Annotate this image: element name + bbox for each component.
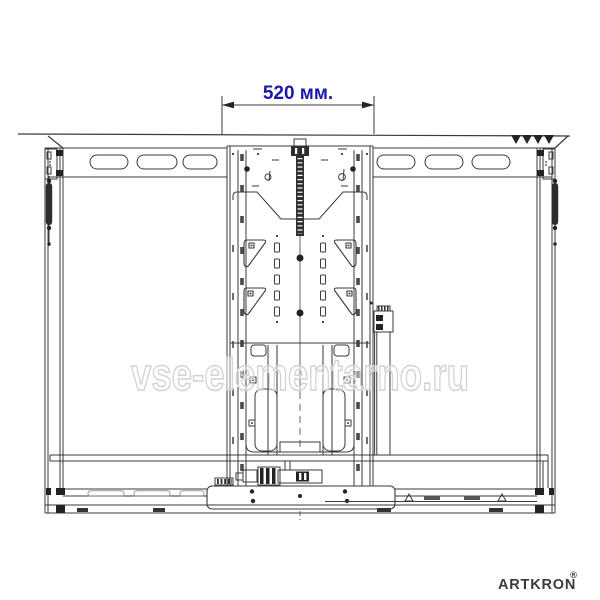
- motor-unit: [215, 461, 322, 485]
- brand-name: ARTKRON: [498, 577, 576, 593]
- dimension-label: 520 мм.: [263, 83, 333, 104]
- watermark: vse-elementarno.ru: [131, 349, 469, 400]
- registered-mark: ®: [570, 570, 577, 581]
- dimension-line: 520 мм.: [222, 83, 374, 134]
- technical-drawing: 520 мм.: [0, 0, 600, 600]
- controller-box: [207, 486, 395, 509]
- brand-logo: ARTKRON ®: [498, 570, 577, 593]
- tv-lift-technical-drawing-page: 520 мм.: [0, 0, 600, 600]
- gas-strut-right: [552, 176, 558, 246]
- gas-strut-left: [46, 176, 52, 246]
- drive-rod: [291, 139, 309, 236]
